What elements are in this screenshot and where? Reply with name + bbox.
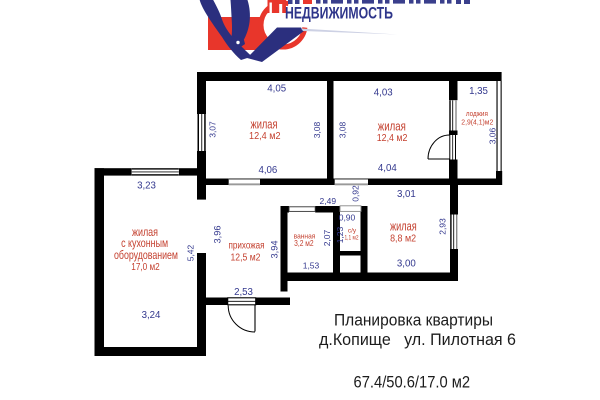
svg-text:3,96: 3,96 (212, 226, 222, 244)
svg-text:3,01: 3,01 (397, 189, 416, 200)
svg-text:4,06: 4,06 (258, 165, 277, 176)
svg-text:8,8 м2: 8,8 м2 (390, 233, 416, 244)
svg-text:1,35: 1,35 (469, 86, 488, 97)
svg-text:3,94: 3,94 (270, 241, 280, 259)
svg-text:3,2 м2: 3,2 м2 (294, 239, 314, 248)
svg-text:3,06: 3,06 (488, 127, 498, 144)
svg-text:12,4 м2: 12,4 м2 (377, 133, 408, 144)
svg-text:д.Копище ул. Пилотная 6: д.Копище ул. Пилотная 6 (319, 331, 516, 349)
svg-text:прихожая: прихожая (229, 241, 265, 252)
svg-text:12,4 м2: 12,4 м2 (249, 131, 281, 142)
svg-text:2,49: 2,49 (320, 196, 337, 206)
svg-text:3,24: 3,24 (142, 310, 161, 321)
svg-text:0,90: 0,90 (339, 213, 356, 223)
svg-text:4,04: 4,04 (378, 163, 397, 174)
svg-text:с/у: с/у (348, 227, 357, 234)
svg-text:1,23: 1,23 (335, 226, 345, 243)
svg-text:5,42: 5,42 (186, 244, 196, 261)
svg-text:12,5 м2: 12,5 м2 (231, 253, 261, 264)
svg-text:2,9(4,1)м2: 2,9(4,1)м2 (461, 120, 493, 127)
svg-text:3,23: 3,23 (137, 181, 156, 192)
svg-text:НЕДВИЖИМОСТЬ: НЕДВИЖИМОСТЬ (285, 4, 393, 23)
svg-text:3,07: 3,07 (208, 121, 218, 138)
svg-text:4,03: 4,03 (374, 88, 393, 99)
svg-text:3,08: 3,08 (338, 121, 348, 138)
svg-text:3,00: 3,00 (397, 258, 416, 269)
svg-text:жилая: жилая (378, 119, 406, 134)
svg-text:0,92: 0,92 (351, 185, 361, 202)
svg-text:Планировка квартиры: Планировка квартиры (334, 312, 493, 330)
svg-text:17,0 м2: 17,0 м2 (131, 262, 160, 273)
svg-text:лоджия: лоджия (466, 111, 488, 118)
svg-text:4,05: 4,05 (267, 83, 286, 94)
svg-text:1,1 м2: 1,1 м2 (345, 235, 359, 242)
svg-text:1,53: 1,53 (303, 261, 320, 271)
svg-text:оборудованием: оборудованием (114, 248, 178, 262)
svg-text:жилая: жилая (390, 219, 417, 234)
svg-text:2,53: 2,53 (234, 287, 253, 298)
svg-text:2,07: 2,07 (322, 229, 332, 246)
svg-text:жилая: жилая (251, 117, 278, 132)
svg-text:2,93: 2,93 (438, 218, 448, 235)
svg-text:3,08: 3,08 (312, 121, 322, 138)
svg-text:67.4/50.6/17.0 м2: 67.4/50.6/17.0 м2 (354, 374, 471, 392)
